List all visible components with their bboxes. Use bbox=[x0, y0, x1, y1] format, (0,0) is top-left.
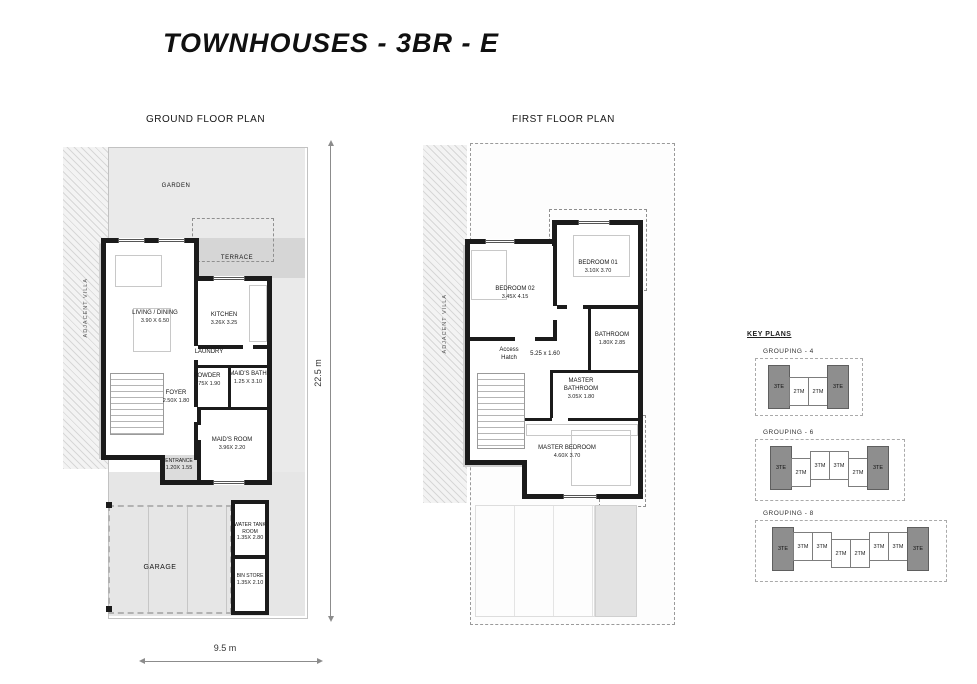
wall-segment bbox=[101, 238, 106, 460]
room-dims: 3.96X 2.20 bbox=[219, 445, 246, 451]
key-plan-unit: 2TM bbox=[808, 377, 828, 406]
room-label-bin-store: BIN STORE 1.35X 2.10 bbox=[233, 573, 267, 587]
wall-segment bbox=[583, 305, 641, 309]
wall-segment bbox=[231, 555, 269, 559]
ground-floor-ghost bbox=[475, 505, 595, 617]
room-label-bathroom: BATHROOM 1.80X 2.85 bbox=[587, 332, 637, 348]
room-dims: 1.35X 2.10 bbox=[237, 580, 264, 586]
first-floor-plan: ADJACENT VILLA bbox=[423, 140, 685, 645]
room-dims: 1.75X 1.90 bbox=[194, 381, 221, 387]
arrowhead-right bbox=[317, 658, 323, 664]
first-floor-heading: FIRST FLOOR PLAN bbox=[512, 114, 615, 125]
room-name: LIVING / DINING bbox=[132, 310, 178, 316]
key-plan-unit: 3TE bbox=[827, 365, 849, 409]
room-name: ENTRANCE bbox=[165, 458, 193, 464]
wall-segment bbox=[465, 239, 470, 465]
wall-segment bbox=[638, 220, 643, 499]
kitchen-counter-outline bbox=[249, 285, 267, 342]
key-plan-unit: 3TM bbox=[829, 451, 849, 480]
window bbox=[485, 239, 515, 244]
adjacent-villa-label: ADJACENT VILLA bbox=[442, 294, 448, 353]
key-plan-unit: 3TM bbox=[810, 451, 830, 480]
room-dims: 4.60X 3.70 bbox=[554, 453, 581, 459]
arrowhead-left bbox=[139, 658, 145, 664]
room-dims: 3.10X 3.70 bbox=[585, 268, 612, 274]
room-label-kitchen: KITCHEN 3.26X 3.25 bbox=[199, 312, 249, 328]
corridor-dims-label: 5.25 x 1.60 bbox=[523, 351, 567, 359]
room-label-bedroom-02: BEDROOM 02 3.45X 4.15 bbox=[483, 286, 547, 302]
room-name: MASTER BEDROOM bbox=[538, 445, 596, 451]
key-plan-unit: 2TM bbox=[850, 539, 870, 568]
column bbox=[106, 502, 112, 508]
room-name: BEDROOM 01 bbox=[578, 260, 617, 266]
room-dims: 3.45X 4.15 bbox=[502, 294, 529, 300]
room-name: MASTER BATHROOM bbox=[564, 378, 598, 392]
key-plan-unit: 3TE bbox=[907, 527, 929, 571]
garden-label: GARDEN bbox=[146, 183, 206, 191]
key-plan-unit: 3TM bbox=[812, 532, 832, 561]
wall-segment bbox=[267, 276, 272, 485]
room-dims: 1.25 X 3.10 bbox=[234, 379, 262, 385]
vertical-dimension-label: 22.5 m bbox=[313, 343, 323, 403]
room-dims: 1.20X 1.55 bbox=[166, 465, 193, 471]
wall-segment bbox=[550, 370, 553, 418]
key-plan-unit: 3TE bbox=[770, 446, 792, 490]
window bbox=[563, 494, 597, 499]
room-dims: 3.05X 1.80 bbox=[568, 394, 595, 400]
wardrobe-outline bbox=[526, 424, 638, 436]
room-name: BATHROOM bbox=[595, 332, 629, 338]
wall-segment bbox=[197, 440, 201, 482]
wall-segment bbox=[194, 238, 199, 281]
grouping-4-label: GROUPING - 4 bbox=[763, 348, 814, 355]
vertical-dimension-line bbox=[330, 142, 331, 620]
grouping-8-label: GROUPING - 8 bbox=[763, 510, 814, 517]
wall-segment bbox=[198, 407, 272, 410]
adjacent-villa-hatch: ADJACENT VILLA bbox=[423, 145, 467, 503]
room-name: POWDER bbox=[194, 373, 221, 379]
horizontal-dimension-label: 9.5 m bbox=[180, 643, 270, 653]
room-name: MAID'S ROOM bbox=[212, 437, 252, 443]
room-label-living-dining: LIVING / DINING 3.90 X 6.50 bbox=[125, 310, 185, 326]
key-plan-unit: 2TM bbox=[791, 458, 811, 487]
wall-segment bbox=[553, 320, 557, 337]
room-label-entrance: ENTRANCE 1.20X 1.55 bbox=[161, 458, 197, 472]
room-label-maids-room: MAID'S ROOM 3.96X 2.20 bbox=[205, 437, 259, 453]
sofa-outline bbox=[115, 255, 162, 287]
adjacent-villa-label: ADJACENT VILLA bbox=[83, 278, 89, 337]
room-dims: 3.90 X 6.50 bbox=[141, 318, 169, 324]
staircase bbox=[477, 373, 525, 449]
room-name: BEDROOM 02 bbox=[495, 286, 534, 292]
room-dims: 1.35X 2.80 bbox=[237, 535, 264, 541]
page-title: TOWNHOUSES - 3BR - E bbox=[163, 28, 499, 59]
room-dims: 2.50X 1.80 bbox=[163, 398, 190, 404]
window bbox=[213, 276, 245, 281]
arrowhead-down bbox=[328, 616, 334, 622]
room-dims: 3.26X 3.25 bbox=[211, 320, 238, 326]
wall-segment bbox=[194, 281, 198, 346]
access-hatch-label: Access Hatch bbox=[495, 347, 523, 363]
room-label-maids-bath: MAID'S BATH 1.25 X 3.10 bbox=[229, 371, 267, 387]
key-plan-unit: 2TM bbox=[831, 539, 851, 568]
room-label-master-bathroom: MASTER BATHROOM 3.05X 1.80 bbox=[555, 378, 607, 401]
key-plan-unit: 3TE bbox=[768, 365, 790, 409]
room-name: MAID'S BATH bbox=[229, 371, 266, 377]
wall-segment bbox=[553, 244, 557, 306]
grouping-8-diagram: 3TE 3TM 3TM 2TM 2TM 3TM 3TM 3TE bbox=[755, 520, 947, 582]
wall-segment bbox=[568, 418, 641, 421]
key-plan-unit: 3TM bbox=[869, 532, 889, 561]
room-label-foyer: FOYER 2.50X 1.80 bbox=[151, 390, 201, 406]
grouping-6-diagram: 3TE 2TM 3TM 3TM 2TM 3TE bbox=[755, 439, 905, 501]
garage-label: GARAGE bbox=[130, 563, 190, 572]
wall-segment bbox=[535, 337, 557, 341]
ground-floor-plan: ADJACENT VILLA bbox=[63, 140, 333, 645]
room-label-water-tank: WATER TANK ROOM 1.35X 2.80 bbox=[233, 522, 267, 542]
wall-segment bbox=[557, 305, 567, 309]
wall-segment bbox=[550, 370, 641, 373]
window bbox=[158, 238, 185, 243]
room-dims: 1.80X 2.85 bbox=[599, 340, 626, 346]
ground-floor-heading: GROUND FLOOR PLAN bbox=[146, 114, 265, 125]
room-label-powder: POWDER 1.75X 1.90 bbox=[185, 373, 229, 389]
room-name: WATER TANK ROOM bbox=[234, 522, 266, 535]
wall-segment bbox=[552, 220, 557, 246]
key-plan-unit: 3TM bbox=[793, 532, 813, 561]
window bbox=[213, 480, 245, 485]
room-name: LAUNDRY bbox=[195, 349, 224, 355]
terrace-label: TERRACE bbox=[207, 255, 267, 263]
key-plan-unit: 2TM bbox=[848, 458, 868, 487]
wall-segment bbox=[465, 460, 527, 465]
column bbox=[106, 606, 112, 612]
room-name: FOYER bbox=[166, 390, 187, 396]
window bbox=[578, 220, 610, 225]
garage-area bbox=[108, 505, 232, 614]
key-plans-heading: KEY PLANS bbox=[747, 331, 791, 338]
grouping-4-diagram: 3TE 2TM 2TM 3TE bbox=[755, 358, 863, 416]
wall-segment bbox=[253, 345, 267, 349]
key-plan-unit: 3TM bbox=[888, 532, 908, 561]
arrowhead-up bbox=[328, 140, 334, 146]
key-plan-unit: 3TE bbox=[867, 446, 889, 490]
wall-segment bbox=[101, 455, 165, 460]
room-label-bedroom-01: BEDROOM 01 3.10X 3.70 bbox=[566, 260, 630, 276]
ground-floor-ghost-strip bbox=[595, 505, 637, 617]
horizontal-dimension-line bbox=[141, 661, 321, 662]
key-plan-unit: 2TM bbox=[789, 377, 809, 406]
key-plan-unit: 3TE bbox=[772, 527, 794, 571]
window bbox=[118, 238, 145, 243]
room-name: KITCHEN bbox=[211, 312, 237, 318]
wall-segment bbox=[470, 337, 515, 341]
room-label-laundry: LAUNDRY bbox=[187, 349, 231, 357]
wall-segment bbox=[198, 365, 268, 368]
floor-plan-sheet: TOWNHOUSES - 3BR - E GROUND FLOOR PLAN F… bbox=[0, 0, 977, 684]
wall-segment bbox=[522, 418, 552, 421]
grouping-6-label: GROUPING - 6 bbox=[763, 429, 814, 436]
room-name: BIN STORE bbox=[237, 573, 264, 579]
room-label-master-bedroom: MASTER BEDROOM 4.60X 3.70 bbox=[535, 445, 599, 461]
wall-segment bbox=[197, 407, 201, 425]
